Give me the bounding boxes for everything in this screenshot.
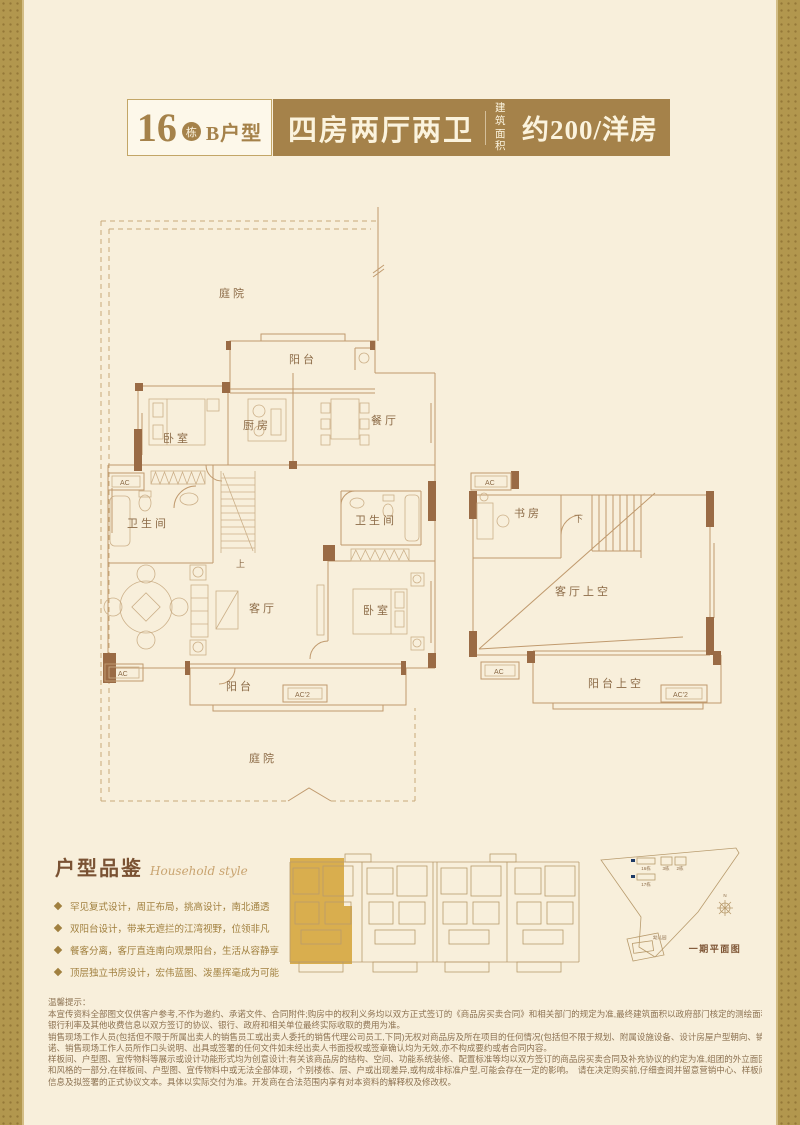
area-value: 约200/洋房 [522, 108, 658, 147]
site-boundary [601, 848, 739, 957]
disclaimer-line: 和风格的一部分,在样板间、户型图、宣传物料中或无法全部体现，个别楼栋、层、户或出… [48, 1065, 762, 1076]
room-label-living: 客厅 [249, 601, 277, 615]
room-label-courtyard-bottom: 庭院 [249, 751, 277, 765]
building-16-label: 16栋 [641, 865, 651, 872]
disclaimer-line: 信息及拟签署的正式协议文本。具体以实际交付为准。开发商在合法范围内享有对本资料的… [48, 1077, 762, 1088]
room-label-balcony-bottom: 阳台 [226, 679, 254, 693]
right-decorative-band [776, 0, 800, 1125]
room-label-bath-2: 卫生间 [355, 513, 397, 527]
feature-item: 罕见复式设计，周正布局，挑高设计，南北通透 [55, 895, 290, 917]
notice-title: 温馨提示： [48, 996, 91, 1008]
room-label-bedroom-2: 卧室 [363, 603, 391, 617]
siteplan-caption: 一期平面图 [689, 943, 742, 954]
area-label: 建筑 面积 [495, 102, 514, 152]
disclaimer-line: 销售现场工作人员(包括但不限于所属出卖人的销售员工或出卖人委托的销售代理公司员工… [48, 1032, 762, 1043]
building-2-label: 2栋 [676, 865, 684, 872]
courtyard-boundary [101, 207, 415, 801]
feature-item: 双阳台设计，带来无遮拦的江湾视野，位领非凡 [55, 917, 290, 939]
building-17-marker [631, 875, 635, 878]
ac-label-4: AC [494, 669, 504, 676]
disclaimer-line: 银行利率及其他收费信息以双方签订的协议、银行、政府和相关单位最终实际收取的费用为… [48, 1020, 762, 1031]
feature-text: 双阳台设计，带来无遮拦的江湾视野，位领非凡 [70, 921, 270, 935]
compass-north-label: N [723, 893, 726, 898]
disclaimer-line: 诺、销售现场工作人员所作口头说明、出具或签署的任何文件如未经出卖人书面授权或签章… [48, 1043, 762, 1054]
stairs-up-label: 上 [236, 559, 245, 569]
flyer-page: 16 栋 B户型 四房两厅两卫 建筑 面积 约200/洋房 [0, 0, 800, 1125]
kindergarten-area: 幼儿园 [627, 933, 667, 961]
features-section: 户型品鉴Household style 罕见复式设计，周正布局，挑高设计，南北通… [55, 852, 290, 983]
block-number: 16 [137, 108, 177, 148]
feature-item: 餐客分离，客厅直连南向观景阳台，生活从容静享 [55, 939, 290, 961]
ac2-label-2: AC'2 [673, 692, 688, 699]
second-floor-piers [469, 471, 721, 665]
ac-label-2: AC [118, 671, 128, 678]
features-list: 罕见复式设计，周正布局，挑高设计，南北通透 双阳台设计，带来无遮拦的江湾视野，位… [55, 895, 290, 983]
area-label-top: 建筑 [495, 102, 507, 127]
banner-divider [485, 111, 486, 145]
second-floor-walls [473, 493, 721, 709]
room-label-study: 书房 [514, 507, 542, 520]
ac2-label-1: AC'2 [295, 692, 310, 699]
building-17-label: 17栋 [641, 881, 651, 888]
stairs-down-label: 下 [574, 514, 583, 524]
layout-title: 四房两厅两卫 [288, 107, 474, 149]
diamond-bullet-icon [54, 924, 62, 932]
room-label-kitchen: 厨房 [243, 419, 271, 432]
disclaimer-line: 样板间、户型图、宣传物料等展示或设计功能形式均为创意设计;有关该商品房的结构、空… [48, 1054, 762, 1065]
room-label-bedroom-1: 卧室 [163, 431, 191, 445]
feature-item: 顶层独立书房设计，宏伟蓝图、泼墨挥毫成为可能 [55, 961, 290, 983]
area-label-bottom: 面积 [495, 128, 507, 153]
site-plan: 幼儿园 16栋 3栋 2栋 17栋 N 一期平面图 [597, 838, 775, 1006]
floorplan-drawing: AC AC AC'2 庭院 阳台 厨房 餐厅 卧室 卫生间 卫生间 客厅 卧室 … [83, 203, 728, 828]
features-heading-script: Household style [150, 864, 248, 878]
ac-label-1: AC [120, 480, 130, 487]
block-badge: 16 栋 B户型 [127, 99, 272, 156]
room-label-balcony-top: 阳台 [289, 352, 317, 366]
feature-text: 餐客分离，客厅直连南向观景阳台，生活从容静享 [70, 943, 279, 957]
second-floor-furniture [477, 493, 509, 539]
feature-text: 罕见复式设计，周正布局，挑高设计，南北通透 [70, 899, 270, 913]
diamond-bullet-icon [54, 968, 62, 976]
ac-label-3: AC [485, 480, 495, 487]
building-footprints: 16栋 3栋 2栋 17栋 [631, 857, 686, 888]
compass-icon: N [717, 893, 733, 916]
block-suffix-circle: 栋 [182, 122, 201, 141]
building-16-marker [631, 859, 635, 862]
room-label-courtyard-top: 庭院 [219, 286, 247, 300]
feature-text: 顶层独立书房设计，宏伟蓝图、泼墨挥毫成为可能 [70, 965, 279, 979]
room-label-bath-1: 卫生间 [127, 516, 169, 530]
room-label-living-void: 客厅上空 [555, 584, 611, 598]
room-label-dining: 餐厅 [371, 413, 399, 427]
diamond-bullet-icon [54, 946, 62, 954]
left-decorative-band [0, 0, 24, 1125]
unit-name: B户型 [206, 117, 262, 146]
header-banner: 四房两厅两卫 建筑 面积 约200/洋房 [273, 99, 670, 156]
room-label-balcony-void: 阳台上空 [588, 676, 644, 690]
features-heading: 户型品鉴 [55, 852, 143, 881]
keyplan-highlight [290, 858, 352, 964]
kindergarten-label: 幼儿园 [653, 934, 667, 941]
disclaimer-line: 本宣传资料全部图文仅供客户参考,不作为邀约、承诺文件、合同附件;购房中的权利义务… [48, 1009, 762, 1020]
disclaimer-text: 本宣传资料全部图文仅供客户参考,不作为邀约、承诺文件、合同附件;购房中的权利义务… [48, 1009, 762, 1088]
building-3-label: 3栋 [662, 865, 670, 872]
keyplan-strip [287, 852, 587, 992]
diamond-bullet-icon [54, 902, 62, 910]
